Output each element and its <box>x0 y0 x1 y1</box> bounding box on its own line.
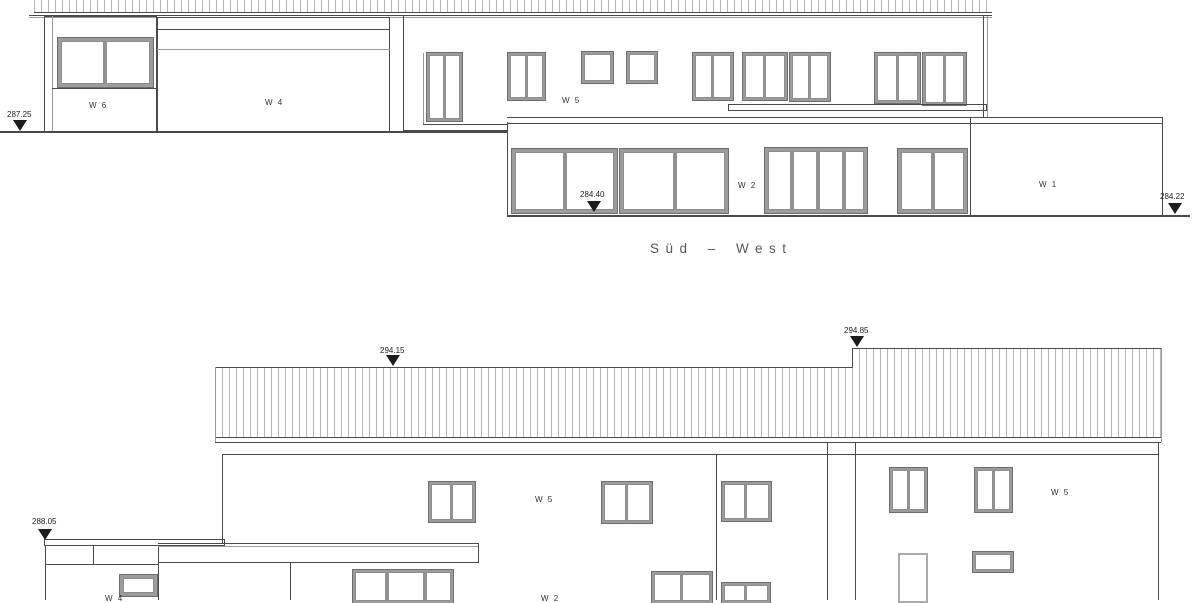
bground-window-3 <box>973 552 1013 572</box>
canopy-line-top <box>158 543 478 544</box>
bupper-window-4 <box>890 468 927 512</box>
label-w2-bottom-clipped: W 2 <box>541 594 560 603</box>
marker-294-85-value: 294.85 <box>844 326 868 335</box>
fascia-line-top <box>507 117 1162 118</box>
label-w5-bottom-mid: W 5 <box>535 495 554 504</box>
lowleft-inner-line <box>93 546 94 565</box>
label-w5-bottom-right: W 5 <box>1051 488 1070 497</box>
lowleft-wall-edge <box>158 546 159 600</box>
bground-window-2 <box>722 583 770 603</box>
terrain-line-right <box>507 215 1190 217</box>
marker-284-22-value: 284.22 <box>1160 192 1184 201</box>
lowleft-small-window <box>120 575 157 596</box>
upper-square-window-1 <box>582 52 613 83</box>
bwall-right-edge <box>1158 443 1159 600</box>
upper-window-2 <box>693 53 733 100</box>
w2-folding-door <box>765 148 867 213</box>
w2-slider-1 <box>512 149 617 213</box>
bwall-left-edge <box>222 455 223 543</box>
w6-wall-inner-line <box>52 16 53 132</box>
upper-window-1-mullion-1 <box>525 55 528 98</box>
bground-window-2-mullion-1 <box>744 585 747 601</box>
w2-slider-3-mullion-1 <box>931 152 935 210</box>
marker-284-40-value: 284.40 <box>580 190 604 199</box>
bground-window-1 <box>652 572 712 603</box>
w6-sill-line <box>52 88 157 89</box>
label-w4-bottom-clipped: W 4 <box>105 594 124 603</box>
main-wall-right-edge <box>983 16 984 117</box>
top-roof-eaves-line <box>29 15 992 16</box>
roof-b-step-edge <box>852 348 853 368</box>
lowleft-sill-line <box>45 564 159 565</box>
w2-block-right-edge <box>970 117 971 216</box>
upper-window-6-mullion-1 <box>943 55 946 103</box>
upper-window-5 <box>875 53 920 103</box>
fascia-line-bottom <box>507 123 1162 124</box>
section-title: Süd – West <box>650 241 793 256</box>
w2-slider-2 <box>620 149 728 213</box>
bupper-window-5-mullion-1 <box>992 470 995 510</box>
terrace-door-sill <box>423 124 507 125</box>
marker-287-25-value: 287.25 <box>7 110 31 119</box>
upper-window-6 <box>923 53 966 105</box>
roof-a-hatch <box>215 367 852 438</box>
bwall-recess-line-1 <box>827 443 828 600</box>
marker-288-05-value: 288.05 <box>32 517 56 526</box>
w2-block-left-edge <box>507 122 508 216</box>
roof-b-hatch <box>852 348 1161 438</box>
upper-square-window-2 <box>627 52 657 83</box>
bupper-window-5 <box>975 468 1012 512</box>
upper-window-4-mullion-1 <box>808 55 811 99</box>
bupper-window-3 <box>722 482 771 521</box>
w1-right-edge <box>1162 117 1163 216</box>
label-w6: W 6 <box>89 101 108 110</box>
marker-284-22-triangle-icon <box>1168 203 1182 214</box>
bupper-window-2 <box>602 482 652 523</box>
roof-a-left-edge <box>215 367 216 442</box>
bupper-window-1 <box>429 482 475 522</box>
bground-glazing-mullion-2 <box>423 572 427 601</box>
roof-b-right-edge <box>1161 348 1162 442</box>
w6-window <box>58 38 153 87</box>
canopy-right-edge <box>478 543 479 563</box>
canopy-line-bottom <box>158 562 478 563</box>
label-w5-top: W 5 <box>562 96 581 105</box>
canopy-line-inner <box>158 546 478 547</box>
label-w2: W 2 <box>738 181 757 190</box>
w4-door-top-line <box>157 49 390 50</box>
marker-294-85-triangle-icon <box>850 336 864 347</box>
w2-folding-door-mullion-2 <box>816 151 820 210</box>
elevation-drawing: Süd – West W 6W 4W 5W 2W 1W 5W 5W 4W 228… <box>0 0 1200 600</box>
main-wall-corner-line <box>423 53 424 124</box>
terrace-door-window-mullion-1 <box>443 55 446 119</box>
w2-folding-door-mullion-1 <box>790 151 794 210</box>
bground-door <box>898 553 928 603</box>
bground-glazing <box>353 570 453 603</box>
main-wall-right-edge-2 <box>987 16 988 117</box>
upper-window-5-mullion-1 <box>896 55 899 101</box>
terrain-line-left <box>0 131 507 133</box>
eaves-line-bottom-2 <box>222 454 1158 455</box>
w6-window-mullion-1 <box>103 41 107 84</box>
bupper-window-3-mullion-1 <box>744 484 747 519</box>
balcony-rail-band <box>728 104 987 111</box>
marker-287-25-triangle-icon <box>13 120 27 131</box>
upper-window-3-mullion-1 <box>763 55 766 98</box>
label-w4: W 4 <box>265 98 284 107</box>
bground-glazing-mullion-1 <box>385 572 389 601</box>
w2-slider-2-mullion-1 <box>673 152 677 210</box>
w4-wall <box>157 17 390 133</box>
upper-window-3 <box>743 53 787 100</box>
w2-slider-1-mullion-1 <box>563 152 567 210</box>
terrace-door-window <box>427 53 462 121</box>
top-roof-hatch <box>34 0 992 13</box>
marker-294-15-triangle-icon <box>386 355 400 366</box>
bupper-window-1-mullion-1 <box>450 484 453 520</box>
lowleft-left-edge <box>45 546 46 600</box>
bupper-window-4-mullion-1 <box>907 470 910 510</box>
upper-window-1 <box>508 53 545 100</box>
bground-window-1-mullion-1 <box>680 574 683 601</box>
marker-284-40-triangle-icon <box>587 201 601 212</box>
bwall-divider <box>716 455 717 600</box>
bupper-window-2-mullion-1 <box>625 484 628 521</box>
bground-wall-line <box>290 563 291 600</box>
main-wall-left-edge <box>403 16 404 130</box>
w2-folding-door-mullion-3 <box>842 151 846 210</box>
bwall-recess-line-2 <box>855 443 856 600</box>
upper-window-4 <box>790 53 830 101</box>
w4-roof-line <box>157 29 390 30</box>
marker-288-05-triangle-icon <box>38 529 52 540</box>
eaves-line-bottom-1 <box>215 442 1161 443</box>
label-w1: W 1 <box>1039 180 1058 189</box>
upper-window-2-mullion-1 <box>711 55 714 98</box>
w2-slider-3 <box>898 149 967 213</box>
marker-294-15-value: 294.15 <box>380 346 404 355</box>
